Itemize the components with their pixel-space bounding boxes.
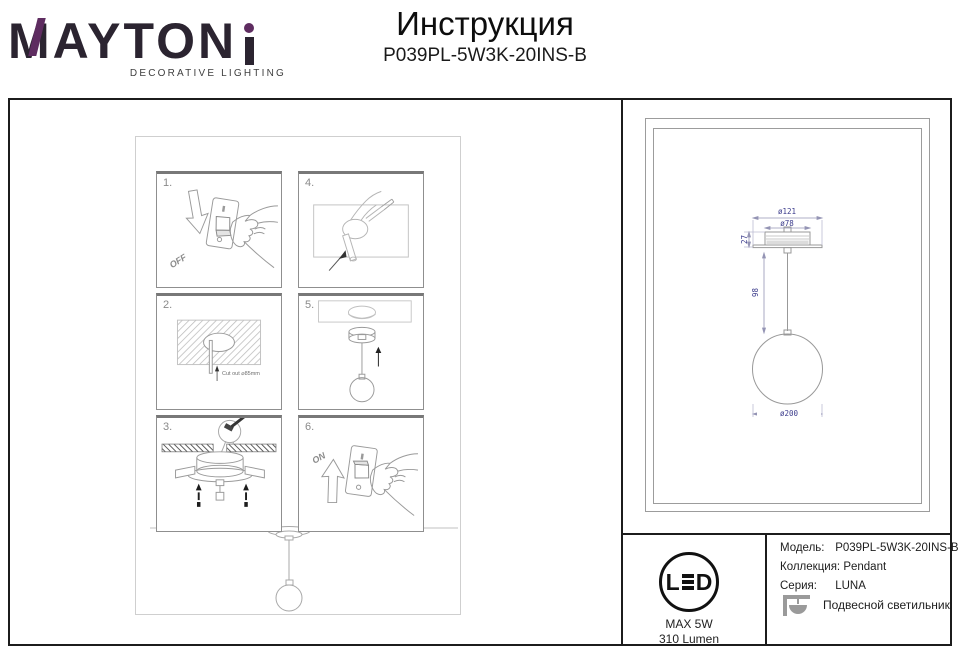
step-number: 3.	[163, 421, 172, 433]
spec-label: Серия:	[780, 580, 832, 592]
instruction-step-1: 1.	[156, 171, 282, 288]
dimension-sphere: ø200	[757, 409, 821, 418]
spec-box-top-border	[623, 533, 952, 535]
dimension-stem-length: 98	[751, 288, 760, 297]
dimension-recess-depth: 27	[740, 235, 749, 244]
max-power-label: MAX 5W	[634, 617, 744, 631]
instruction-step-6: 6.	[298, 415, 424, 532]
instruction-sheet: MAYTON DECORATIVE LIGHTING Инструкция P0…	[0, 0, 960, 656]
spec-label: Модель:	[780, 542, 832, 554]
instruction-step-5: 5.	[298, 293, 424, 410]
step-4-illustration	[299, 174, 423, 287]
spec-row-model: Модель: P039PL-5W3K-20INS-B	[780, 542, 952, 554]
step-number: 6.	[305, 421, 314, 433]
led-letter-d: D	[696, 571, 713, 594]
spec-box-divider	[765, 535, 767, 646]
step-number: 1.	[163, 177, 172, 189]
step-number: 5.	[305, 299, 314, 311]
instruction-step-2: 2.	[156, 293, 282, 410]
spec-table: Модель: P039PL-5W3K-20INS-B Коллекция: P…	[780, 542, 952, 599]
step-3-illustration	[157, 418, 281, 531]
led-letter-l: L	[666, 571, 680, 594]
led-badge-icon: L D	[659, 552, 719, 612]
brand-i-glyph	[244, 23, 254, 65]
instruction-step-3: 3.	[156, 415, 282, 532]
brand-logo: MAYTON DECORATIVE LIGHTING	[8, 10, 308, 90]
brand-i-stem	[245, 37, 254, 65]
vertical-divider	[621, 98, 623, 646]
spec-value: Pendant	[843, 561, 886, 573]
luminaire-type-label: Подвесной светильник	[823, 598, 950, 612]
step-2-illustration	[157, 296, 281, 409]
led-letter-e-bars	[682, 574, 694, 590]
page-title: Инструкция	[320, 6, 650, 42]
step-5-illustration	[299, 296, 423, 409]
spec-label: Коллекция:	[780, 561, 840, 573]
cutout-label: Cut out ⌀85mm	[222, 371, 260, 377]
document-header: Инструкция P039PL-5W3K-20INS-B	[320, 6, 650, 67]
instruction-step-4: 4.	[298, 171, 424, 288]
step-number: 2.	[163, 299, 172, 311]
spec-value: P039PL-5W3K-20INS-B	[835, 542, 958, 554]
step-number: 4.	[305, 177, 314, 189]
luminous-flux-label: 310 Lumen	[634, 632, 744, 646]
spec-value: LUNA	[835, 580, 866, 592]
pendant-dimension-drawing	[645, 118, 930, 512]
dimension-canopy-outer: ø121	[757, 207, 817, 216]
spec-row-collection: Коллекция: Pendant	[780, 561, 952, 573]
dimension-canopy-inner: ø78	[757, 219, 817, 228]
model-number: P039PL-5W3K-20INS-B	[320, 45, 650, 67]
brand-i-dot	[244, 23, 254, 33]
step-6-illustration	[299, 418, 423, 531]
spec-row-series: Серия: LUNA	[780, 580, 952, 592]
step-1-illustration	[157, 174, 281, 287]
brand-tagline: DECORATIVE LIGHTING	[8, 68, 286, 79]
pendant-lamp-icon	[781, 593, 813, 617]
